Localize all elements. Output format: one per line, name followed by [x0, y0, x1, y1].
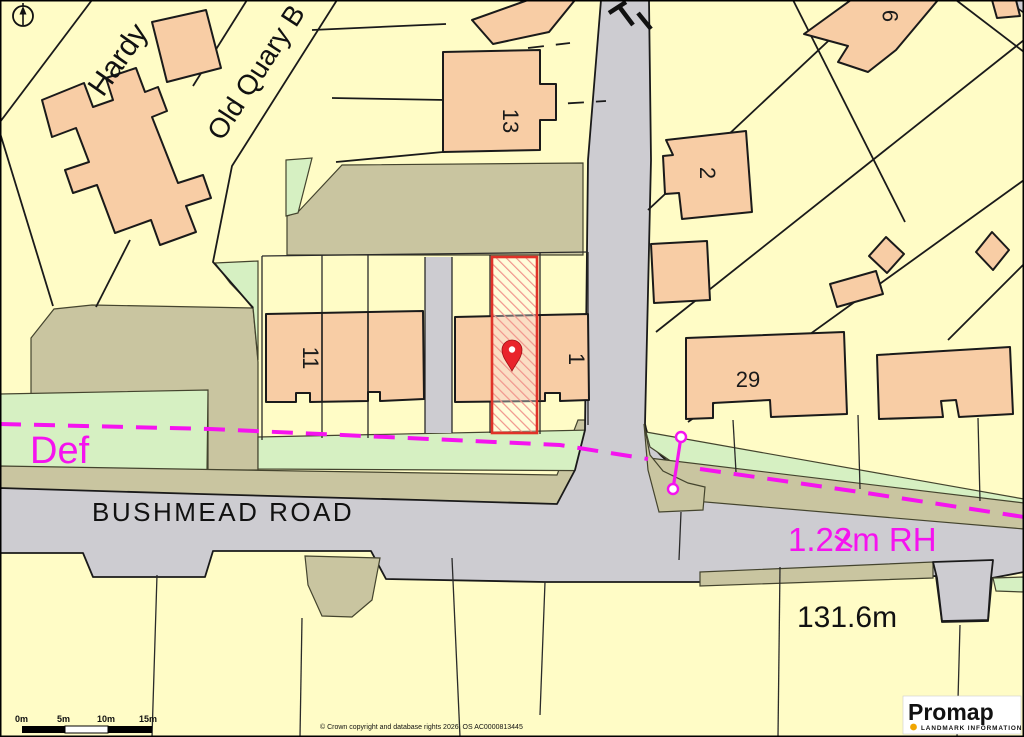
scale-0m: 0m	[15, 714, 28, 724]
road-name-bushmead: BUSHMEAD ROAD	[92, 497, 354, 527]
house-number-9: 9	[878, 10, 903, 22]
house-number-11: 11	[298, 347, 323, 370]
spot-height-label: 131.6m	[797, 601, 897, 634]
subject-plot	[492, 257, 537, 433]
scale-5m: 5m	[57, 714, 70, 724]
os-map: 13 2 9 11 1 29 Def 1.22m RH BUSHMEAD ROA…	[0, 0, 1024, 737]
def-label: Def	[30, 430, 90, 472]
logo-dot-icon	[910, 724, 917, 731]
boundary-node-icon	[668, 484, 678, 494]
promap-logo[interactable]: Promap LANDMARK INFORMATION	[903, 696, 1022, 734]
scale-15m: 15m	[139, 714, 157, 724]
house-number-29: 29	[736, 367, 760, 392]
promap-brand-text: Promap	[908, 699, 994, 725]
scale-10m: 10m	[97, 714, 115, 724]
copyright-text: © Crown copyright and database rights 20…	[320, 723, 523, 731]
house-number-13: 13	[498, 109, 523, 133]
house-number-1: 1	[564, 353, 589, 365]
map-canvas[interactable]: 13 2 9 11 1 29 Def 1.22m RH BUSHMEAD ROA…	[0, 0, 1024, 737]
fence-height-label: 1.22m RH	[788, 521, 937, 558]
promap-tagline-text: LANDMARK INFORMATION	[921, 725, 1022, 732]
house-number-2: 2	[695, 167, 720, 179]
boundary-node-icon	[676, 432, 686, 442]
